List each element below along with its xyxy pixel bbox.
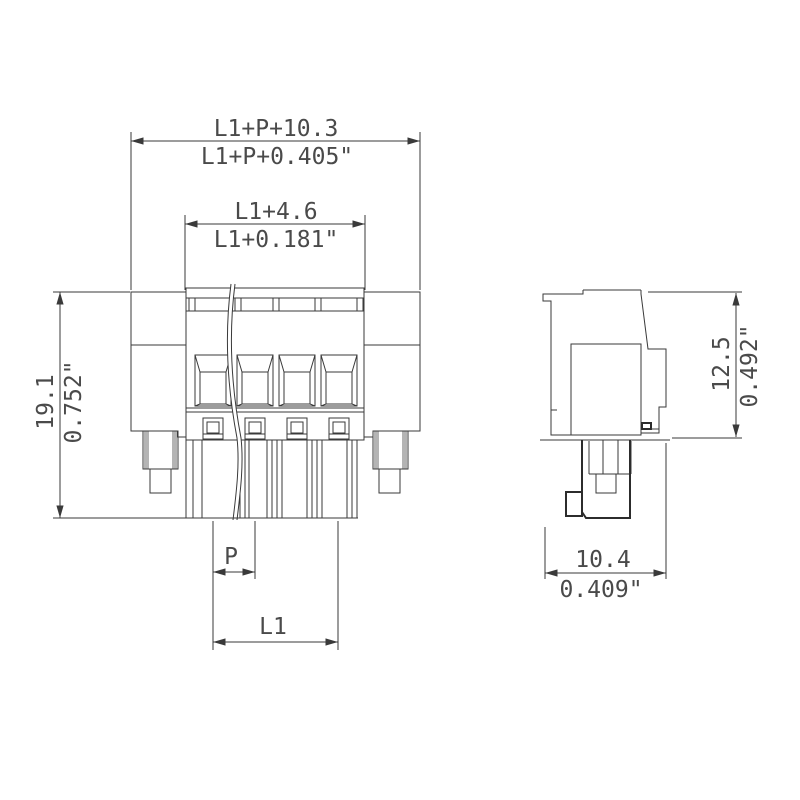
contact-3 [287, 418, 307, 439]
wire-funnel-2 [237, 355, 273, 406]
latch-strip-dividers [189, 298, 363, 311]
front-view [131, 284, 420, 520]
side-foot [566, 440, 630, 518]
pin-skirt [186, 440, 357, 518]
contact-2 [245, 418, 265, 439]
mounting-foot-left [143, 431, 178, 493]
side-housing [571, 344, 641, 435]
dim-length-label: L1 [259, 614, 287, 640]
dimensions: L1+P+10.3 L1+P+0.405" L1+4.6 L1+0.181" 1… [33, 116, 763, 650]
hook-latch [642, 423, 659, 433]
wire-funnel-1 [195, 355, 231, 406]
latch-strip [186, 298, 364, 311]
dim-pitch-label: P [224, 544, 238, 570]
dim-depth-mm-label: 10.4 [575, 547, 630, 573]
dim-depth: 10.4 0.409" [545, 443, 666, 603]
wire-funnel-3 [279, 355, 315, 406]
front-flange-right [364, 292, 420, 437]
side-outline [543, 290, 666, 435]
dim-pitch: P [213, 521, 255, 650]
dim-height-in-label: 0.752" [61, 360, 87, 443]
mounting-foot-right [373, 431, 408, 493]
technical-drawing: L1+P+10.3 L1+P+0.405" L1+4.6 L1+0.181" 1… [0, 0, 800, 800]
side-pin [589, 440, 631, 493]
side-foot-tab [566, 492, 582, 516]
contact-4 [329, 418, 349, 439]
dim-inner-width-in-label: L1+0.181" [214, 227, 339, 253]
dim-overall-width-in-label: L1+P+0.405" [201, 144, 353, 170]
dim-side-height-mm-label: 12.5 [709, 336, 735, 391]
wire-funnel-4 [321, 355, 357, 406]
dim-height-mm-label: 19.1 [33, 374, 59, 429]
drawing-canvas: L1+P+10.3 L1+P+0.405" L1+4.6 L1+0.181" 1… [0, 0, 800, 800]
contact-1 [203, 418, 223, 439]
side-pin-tip [596, 474, 616, 493]
dim-side-height: 12.5 0.492" [648, 292, 763, 438]
dim-overall-width-mm-label: L1+P+10.3 [214, 116, 339, 142]
mounting-peg-left [150, 469, 171, 493]
break-line [227, 284, 242, 520]
mounting-peg-right [379, 469, 400, 493]
side-view [540, 290, 670, 518]
dim-depth-in-label: 0.409" [559, 577, 642, 603]
dim-side-height-in-label: 0.492" [737, 324, 763, 407]
front-flange-left [131, 292, 186, 437]
dim-length: L1 [213, 521, 338, 650]
dim-inner-width-mm-label: L1+4.6 [234, 199, 317, 225]
dim-inner-width: L1+4.6 L1+0.181" [185, 199, 365, 290]
